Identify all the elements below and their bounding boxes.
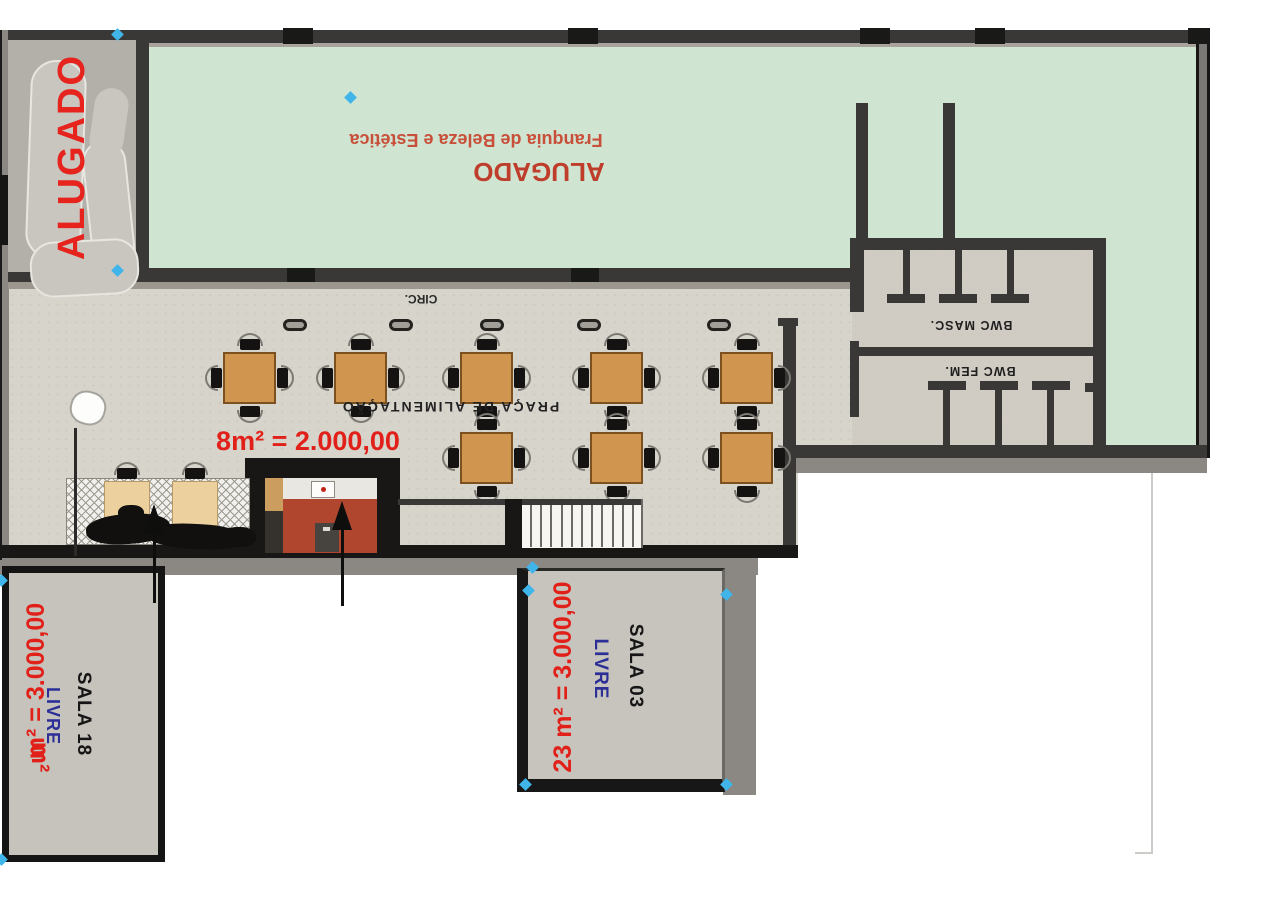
corridor-wall-cap bbox=[778, 318, 798, 326]
stair-step bbox=[561, 505, 563, 547]
green-room-floor bbox=[148, 43, 1196, 268]
dining-chair bbox=[442, 444, 460, 472]
dining-table bbox=[223, 352, 276, 404]
annotation-arrow-stem bbox=[341, 528, 344, 606]
dining-chair bbox=[603, 333, 631, 351]
dining-table bbox=[720, 432, 773, 484]
green-room-wall-stub bbox=[943, 103, 955, 240]
floor-vent bbox=[480, 319, 504, 331]
property-line-hook bbox=[1135, 852, 1153, 854]
dining-chair bbox=[733, 333, 761, 351]
stair-step bbox=[540, 505, 542, 547]
bwc-fem-label: BWC FEM. bbox=[925, 363, 1035, 379]
top-wall bbox=[8, 30, 1208, 43]
annotation-arrow-head bbox=[144, 504, 164, 533]
dining-chair bbox=[643, 444, 661, 472]
bathroom-right-wall bbox=[1093, 238, 1106, 457]
top-wall-joint bbox=[568, 28, 598, 44]
stair-step bbox=[612, 505, 614, 547]
floor-vent bbox=[389, 319, 413, 331]
sala18-status-label: LIVRE bbox=[42, 678, 64, 754]
stall-partition-stem bbox=[943, 388, 950, 445]
column-pole bbox=[74, 428, 77, 556]
dining-chair bbox=[733, 413, 761, 431]
dining-chair bbox=[276, 364, 294, 392]
floor-vent bbox=[707, 319, 731, 331]
dining-chair bbox=[702, 364, 720, 392]
stall-wall-stub bbox=[1085, 383, 1103, 392]
left-outer-wall-edge bbox=[0, 30, 2, 560]
stall-partition-base bbox=[991, 294, 1029, 303]
dining-table bbox=[460, 432, 513, 484]
dining-chair bbox=[442, 364, 460, 392]
dining-chair bbox=[236, 405, 264, 423]
stair-step bbox=[530, 505, 532, 547]
top-wall-joint bbox=[860, 28, 890, 44]
stair-step bbox=[550, 505, 552, 547]
stall-partition-base bbox=[887, 294, 925, 303]
stair-step bbox=[632, 505, 634, 547]
stair-step bbox=[591, 505, 593, 547]
dining-table bbox=[590, 432, 643, 484]
kiosk-equipment-detail bbox=[323, 527, 330, 531]
bottom-wall-left-corner bbox=[0, 545, 9, 558]
dining-chair bbox=[702, 444, 720, 472]
food-court-bottom-wall bbox=[8, 545, 798, 558]
food-court-label: PRAÇA DE ALIMENTAÇÃO bbox=[330, 398, 570, 416]
buffet-table bbox=[172, 481, 218, 526]
dining-table bbox=[590, 352, 643, 404]
bathroom-divider-wall bbox=[850, 347, 1097, 356]
dining-chair bbox=[773, 364, 791, 392]
corridor-wall bbox=[783, 320, 796, 548]
stall-partition-base bbox=[939, 294, 977, 303]
top-wall-joint bbox=[975, 28, 1005, 44]
dining-chair bbox=[733, 485, 761, 503]
floor-vent bbox=[577, 319, 601, 331]
dining-table bbox=[334, 352, 387, 404]
green-room-wall-stub bbox=[856, 103, 868, 240]
buffet-chair bbox=[113, 462, 141, 480]
stair-step bbox=[622, 505, 624, 547]
stair-step bbox=[601, 505, 603, 547]
staircase-left-wall bbox=[505, 499, 522, 557]
dining-table bbox=[720, 352, 773, 404]
dining-chair bbox=[205, 364, 223, 392]
kiosk-cabinet-dark bbox=[265, 511, 283, 553]
kiosk-price-label: 8m² = 2.000,00 bbox=[198, 426, 418, 456]
bwc-masc-label: BWC MASC. bbox=[916, 317, 1026, 333]
dining-chair bbox=[347, 333, 375, 351]
floor-plan: ALUGADO Franquia de Beleza e Estética AL… bbox=[0, 0, 1280, 907]
stall-partition-stem bbox=[1007, 250, 1014, 296]
bathroom-top-wall bbox=[850, 238, 1105, 250]
stamp-alugado-label: ALUGADO bbox=[49, 41, 95, 273]
bathroom-south-band bbox=[787, 458, 1207, 473]
dining-chair bbox=[773, 444, 791, 472]
green-bottom-joint bbox=[571, 268, 599, 282]
sala03-price-label: 23 m² = 3.000,00 bbox=[547, 565, 579, 789]
dining-chair bbox=[236, 333, 264, 351]
stall-partition-stem bbox=[903, 250, 910, 296]
sala03-status-label: LIVRE bbox=[589, 629, 613, 709]
right-outer-wall-core bbox=[1199, 31, 1207, 455]
dining-chair bbox=[473, 333, 501, 351]
dining-chair bbox=[643, 364, 661, 392]
annotation-arrow-head bbox=[332, 501, 352, 530]
green-bottom-joint bbox=[287, 268, 315, 282]
circulation-label: CIRC. bbox=[386, 291, 456, 307]
floor-vent bbox=[283, 319, 307, 331]
stair-step bbox=[581, 505, 583, 547]
stamp-box-right-wall bbox=[136, 36, 149, 282]
staircase-right-edge bbox=[641, 499, 643, 548]
dining-table bbox=[460, 352, 513, 404]
storage-bags bbox=[118, 505, 144, 521]
property-line bbox=[1151, 462, 1153, 854]
buffet-chair bbox=[181, 462, 209, 480]
green-room-floor-right bbox=[1105, 240, 1196, 445]
top-wall-joint bbox=[283, 28, 313, 44]
annotation-arrow-stem bbox=[153, 531, 156, 603]
dining-chair bbox=[513, 444, 531, 472]
dining-chair bbox=[603, 413, 631, 431]
stall-partition-stem bbox=[955, 250, 962, 296]
dining-chair bbox=[513, 364, 531, 392]
dining-chair bbox=[316, 364, 334, 392]
bathroom-bottom-wall bbox=[783, 445, 1207, 458]
green-bottom-wall-shadow bbox=[8, 282, 860, 289]
dining-chair bbox=[572, 444, 590, 472]
bathroom-left-wall bbox=[850, 238, 864, 312]
stair-step bbox=[571, 505, 573, 547]
kiosk-cabinet bbox=[265, 478, 283, 511]
sala03-name-label: SALA 03 bbox=[624, 608, 648, 724]
stall-partition-stem bbox=[1047, 388, 1054, 445]
green-room-status-label: ALUGADO bbox=[439, 157, 639, 187]
sala18-name-label: SALA 18 bbox=[72, 649, 96, 779]
stall-partition-stem bbox=[995, 388, 1002, 445]
top-wall-corner bbox=[1188, 28, 1210, 44]
kiosk-stove-burner bbox=[321, 487, 326, 492]
dining-chair bbox=[387, 364, 405, 392]
green-room-business-label: Franquia de Beleza e Estética bbox=[276, 127, 676, 153]
dining-chair bbox=[572, 364, 590, 392]
storage-bags bbox=[222, 527, 256, 547]
